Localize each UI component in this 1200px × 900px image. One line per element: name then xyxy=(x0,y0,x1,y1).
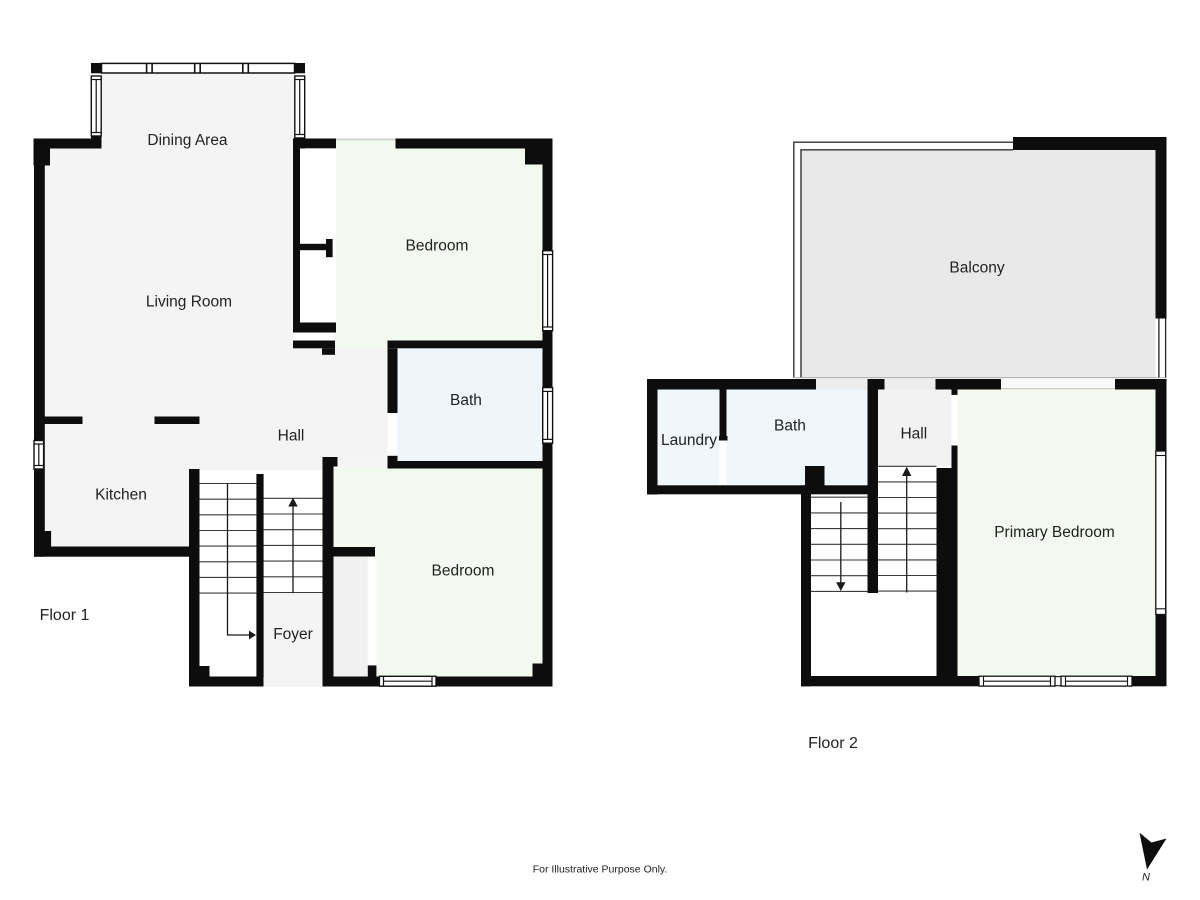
svg-text:Foyer: Foyer xyxy=(273,626,313,643)
svg-text:N: N xyxy=(1142,872,1150,884)
svg-text:Kitchen: Kitchen xyxy=(95,487,147,504)
svg-text:Floor 2: Floor 2 xyxy=(808,735,858,752)
svg-text:For Illustrative Purpose Only.: For Illustrative Purpose Only. xyxy=(533,864,668,876)
svg-text:Bedroom: Bedroom xyxy=(432,563,495,580)
svg-text:Bath: Bath xyxy=(450,392,482,409)
svg-text:Dining Area: Dining Area xyxy=(147,132,228,149)
svg-text:Bath: Bath xyxy=(774,418,806,435)
svg-text:Floor 1: Floor 1 xyxy=(40,607,90,624)
svg-text:Balcony: Balcony xyxy=(949,260,1004,277)
svg-text:Laundry: Laundry xyxy=(661,432,717,449)
svg-text:Living Room: Living Room xyxy=(146,294,232,311)
svg-text:Primary Bedroom: Primary Bedroom xyxy=(994,524,1115,541)
svg-text:Hall: Hall xyxy=(278,428,305,445)
svg-text:Bedroom: Bedroom xyxy=(406,238,469,255)
svg-text:Hall: Hall xyxy=(900,426,927,443)
